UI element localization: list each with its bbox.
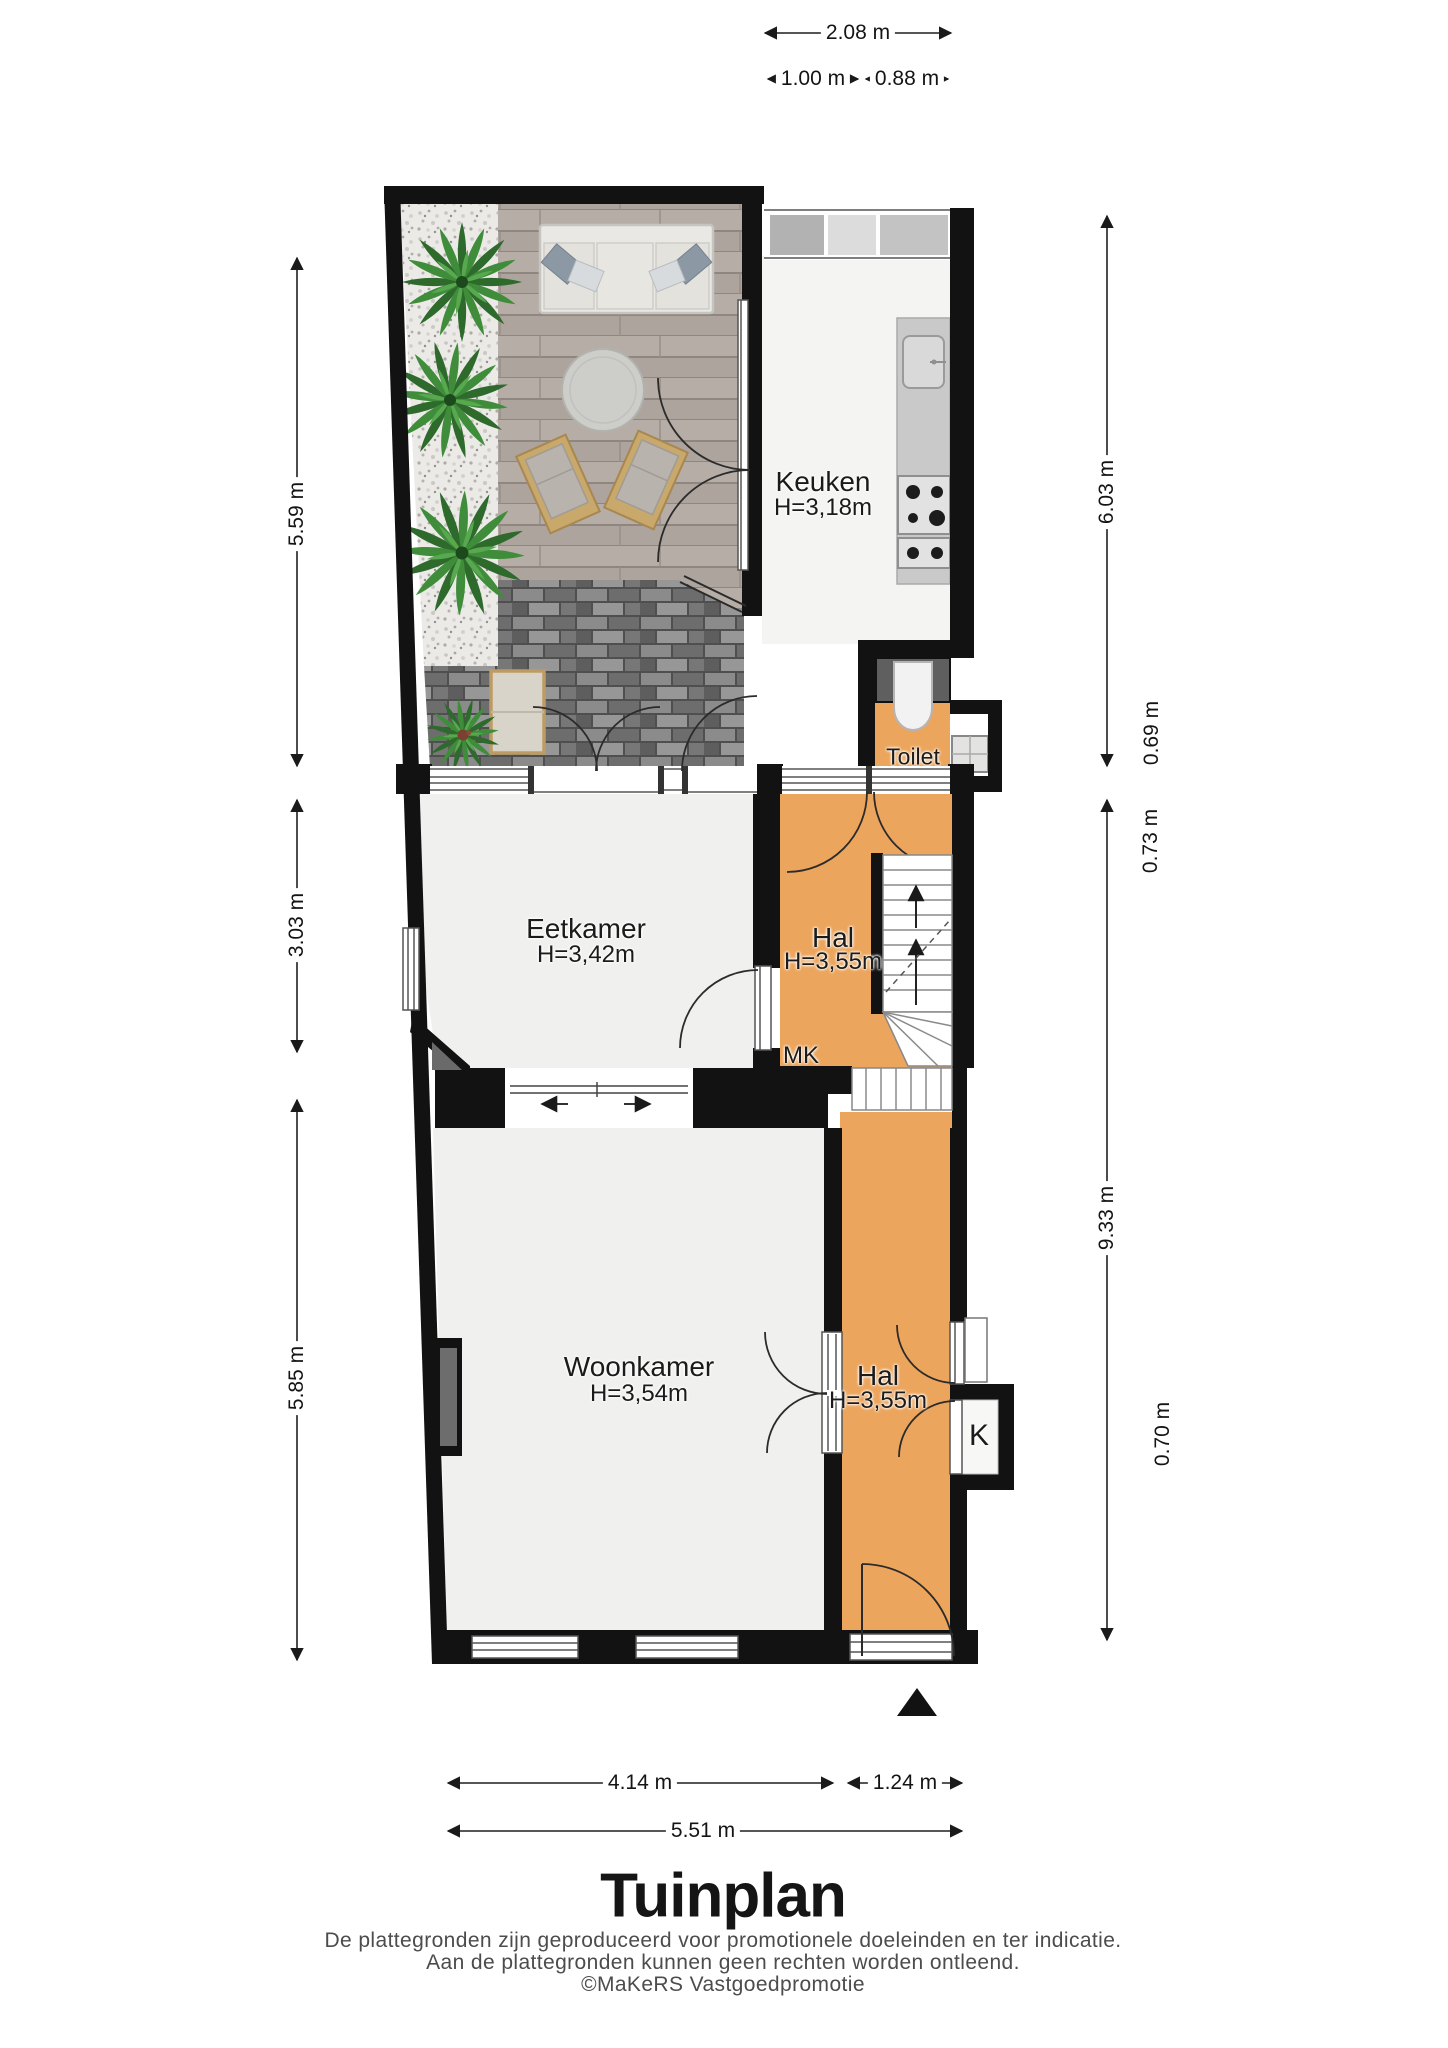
dim-left-garden: 5.59 m [285, 477, 309, 551]
keuken-top-windows [764, 208, 950, 260]
dim-left-woonkamer: 5.85 m [285, 1341, 309, 1415]
room-height-hal-boven: H=3,55m [784, 948, 882, 976]
dim-top-left: 1.00 m [776, 67, 850, 91]
stove-icon [898, 476, 950, 568]
stair-flight-lower [852, 1068, 952, 1110]
room-height-hal-beneden: H=3,55m [829, 1387, 927, 1415]
page-title: Tuinplan [600, 1861, 846, 1932]
floorplan-page: 2.08 m 1.00 m 0.88 m 5.59 m 3.03 m 5.85 … [0, 0, 1448, 2048]
north-arrow-icon [897, 1688, 937, 1716]
dim-right-rear: 9.33 m [1095, 1181, 1119, 1255]
room-height-keuken: H=3,18m [774, 494, 872, 522]
dim-right-hal-entry: 0.73 m [1139, 804, 1163, 878]
garden-sofa [540, 225, 713, 313]
garden-window-line [430, 766, 950, 794]
disclaimer-line2: Aan de plattegronden kunnen geen rechten… [426, 1951, 1020, 1975]
dim-right-toilet: 0.69 m [1140, 696, 1164, 770]
room-height-woonkamer: H=3,54m [590, 1380, 688, 1408]
sliding-door [505, 1068, 693, 1112]
room-label-toilet: Toilet [886, 744, 940, 771]
room-height-eetkamer: H=3,42m [537, 941, 635, 969]
dim-right-kast: 0.70 m [1151, 1397, 1175, 1471]
dim-top-right: 0.88 m [870, 67, 944, 91]
credit-line: ©MaKeRS Vastgoedpromotie [581, 1973, 865, 1997]
garden-table [562, 349, 644, 431]
dim-right-keuken: 6.03 m [1095, 455, 1119, 529]
label-kast: K [969, 1419, 989, 1453]
disclaimer-line1: De plattegronden zijn geproduceerd voor … [324, 1929, 1121, 1953]
facade-windows [472, 1634, 952, 1660]
dim-top-total: 2.08 m [821, 21, 895, 45]
label-meterkast: MK [783, 1042, 819, 1070]
dim-bottom-woonkamer: 4.14 m [603, 1771, 677, 1795]
dim-left-eetkamer: 3.03 m [285, 888, 309, 962]
dim-bottom-hal: 1.24 m [868, 1771, 942, 1795]
dim-bottom-total: 5.51 m [666, 1819, 740, 1843]
room-label-woonkamer: Woonkamer [564, 1351, 714, 1383]
plant-icon [402, 222, 522, 342]
floorplan-drawing [0, 0, 1448, 2048]
toilet-bowl-icon [894, 662, 932, 730]
terrace-bench [491, 671, 544, 753]
fireplace-niche [433, 1338, 462, 1456]
